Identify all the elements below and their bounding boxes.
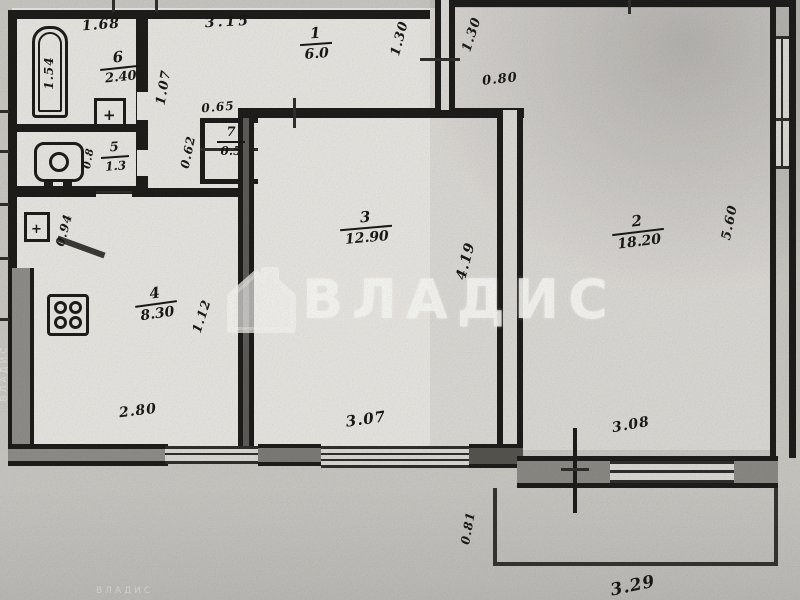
scanned-floor-plan: 1.54 + + [0, 0, 800, 600]
sink-cross: + [31, 223, 43, 236]
dimension-tick [628, 0, 631, 14]
bathtub-icon: 1.54 [32, 26, 68, 118]
dim-bath-width: 1.68 [80, 17, 123, 34]
burner [69, 301, 82, 314]
window-symbol [165, 446, 258, 449]
room-area: 1.3 [101, 155, 131, 173]
toilet-bowl [49, 152, 69, 172]
room-area: 2.40 [100, 65, 141, 86]
wall [8, 124, 148, 132]
window-symbol [321, 446, 469, 449]
dimension-tick [0, 257, 9, 260]
room-area: 0.5 [217, 141, 246, 157]
wall [8, 444, 168, 466]
dim-tub-length: 1.54 [43, 47, 55, 99]
room-area: 6.0 [300, 42, 334, 62]
room-label-1: 16.0 [295, 25, 337, 63]
wall [449, 0, 455, 110]
dimension-tick [112, 0, 115, 12]
window-symbol [321, 465, 469, 468]
room-label-2: 218.20 [608, 211, 668, 253]
room-label-3: 312.90 [337, 208, 396, 248]
dimension-tick [293, 98, 296, 128]
window-symbol [321, 453, 469, 455]
burner [54, 301, 67, 314]
window-symbol [610, 470, 734, 473]
burner [54, 316, 67, 329]
kitchen-sink-icon: + [24, 212, 50, 242]
dimension-tick [155, 0, 158, 12]
window-symbol [321, 459, 469, 461]
wall-core [441, 0, 449, 110]
wall [238, 108, 524, 118]
window-symbol [781, 38, 783, 167]
dimension-tick [561, 468, 589, 471]
wall [8, 268, 34, 450]
wall [469, 444, 523, 468]
dimension-tick [0, 203, 9, 206]
door-opening [96, 191, 132, 193]
room-area: 12.90 [340, 225, 393, 247]
watermark-brand-text: ВЛАДИС [302, 268, 617, 331]
wall [258, 444, 321, 466]
door-opening [137, 150, 148, 176]
dimension-tick [0, 110, 9, 113]
sink-icon: + [94, 98, 126, 128]
dim-balcony-depth: 0.81 [458, 503, 478, 552]
window-symbol [165, 453, 258, 455]
wall [8, 188, 96, 197]
wall [200, 118, 205, 184]
wall [8, 10, 17, 272]
room-label-7: 70.5 [214, 126, 248, 158]
window-symbol [165, 461, 258, 464]
window-symbol [776, 36, 789, 39]
balcony-outline [493, 488, 778, 566]
room-label-4: 48.30 [130, 283, 182, 324]
door-opening [137, 92, 148, 120]
window-symbol [776, 166, 789, 169]
stove-icon [47, 294, 89, 336]
dim-balcony-width: 3.29 [595, 570, 671, 600]
burner [69, 316, 82, 329]
room-label-6: 62.40 [98, 48, 139, 86]
window-symbol [610, 480, 734, 483]
sink-cross: + [103, 108, 117, 123]
room-number: 7 [214, 126, 248, 141]
wall [132, 188, 242, 197]
watermark-edge-text: ВЛАДИС [0, 344, 10, 401]
window-symbol [776, 118, 789, 121]
dimension-tick [0, 318, 9, 321]
toilet-icon [34, 142, 84, 182]
dimension-tick [420, 58, 460, 61]
house-logo-icon [218, 258, 304, 338]
window-symbol [610, 461, 734, 464]
wall [789, 0, 796, 458]
dimension-tick [0, 150, 9, 153]
room-label-5: 51.3 [97, 140, 133, 174]
wall [455, 0, 795, 7]
watermark-bottom-text: ВЛАДИС [96, 586, 153, 596]
dim-hall-top: 3.15 [201, 14, 256, 31]
dim-closet-width: 0.65 [200, 99, 237, 114]
